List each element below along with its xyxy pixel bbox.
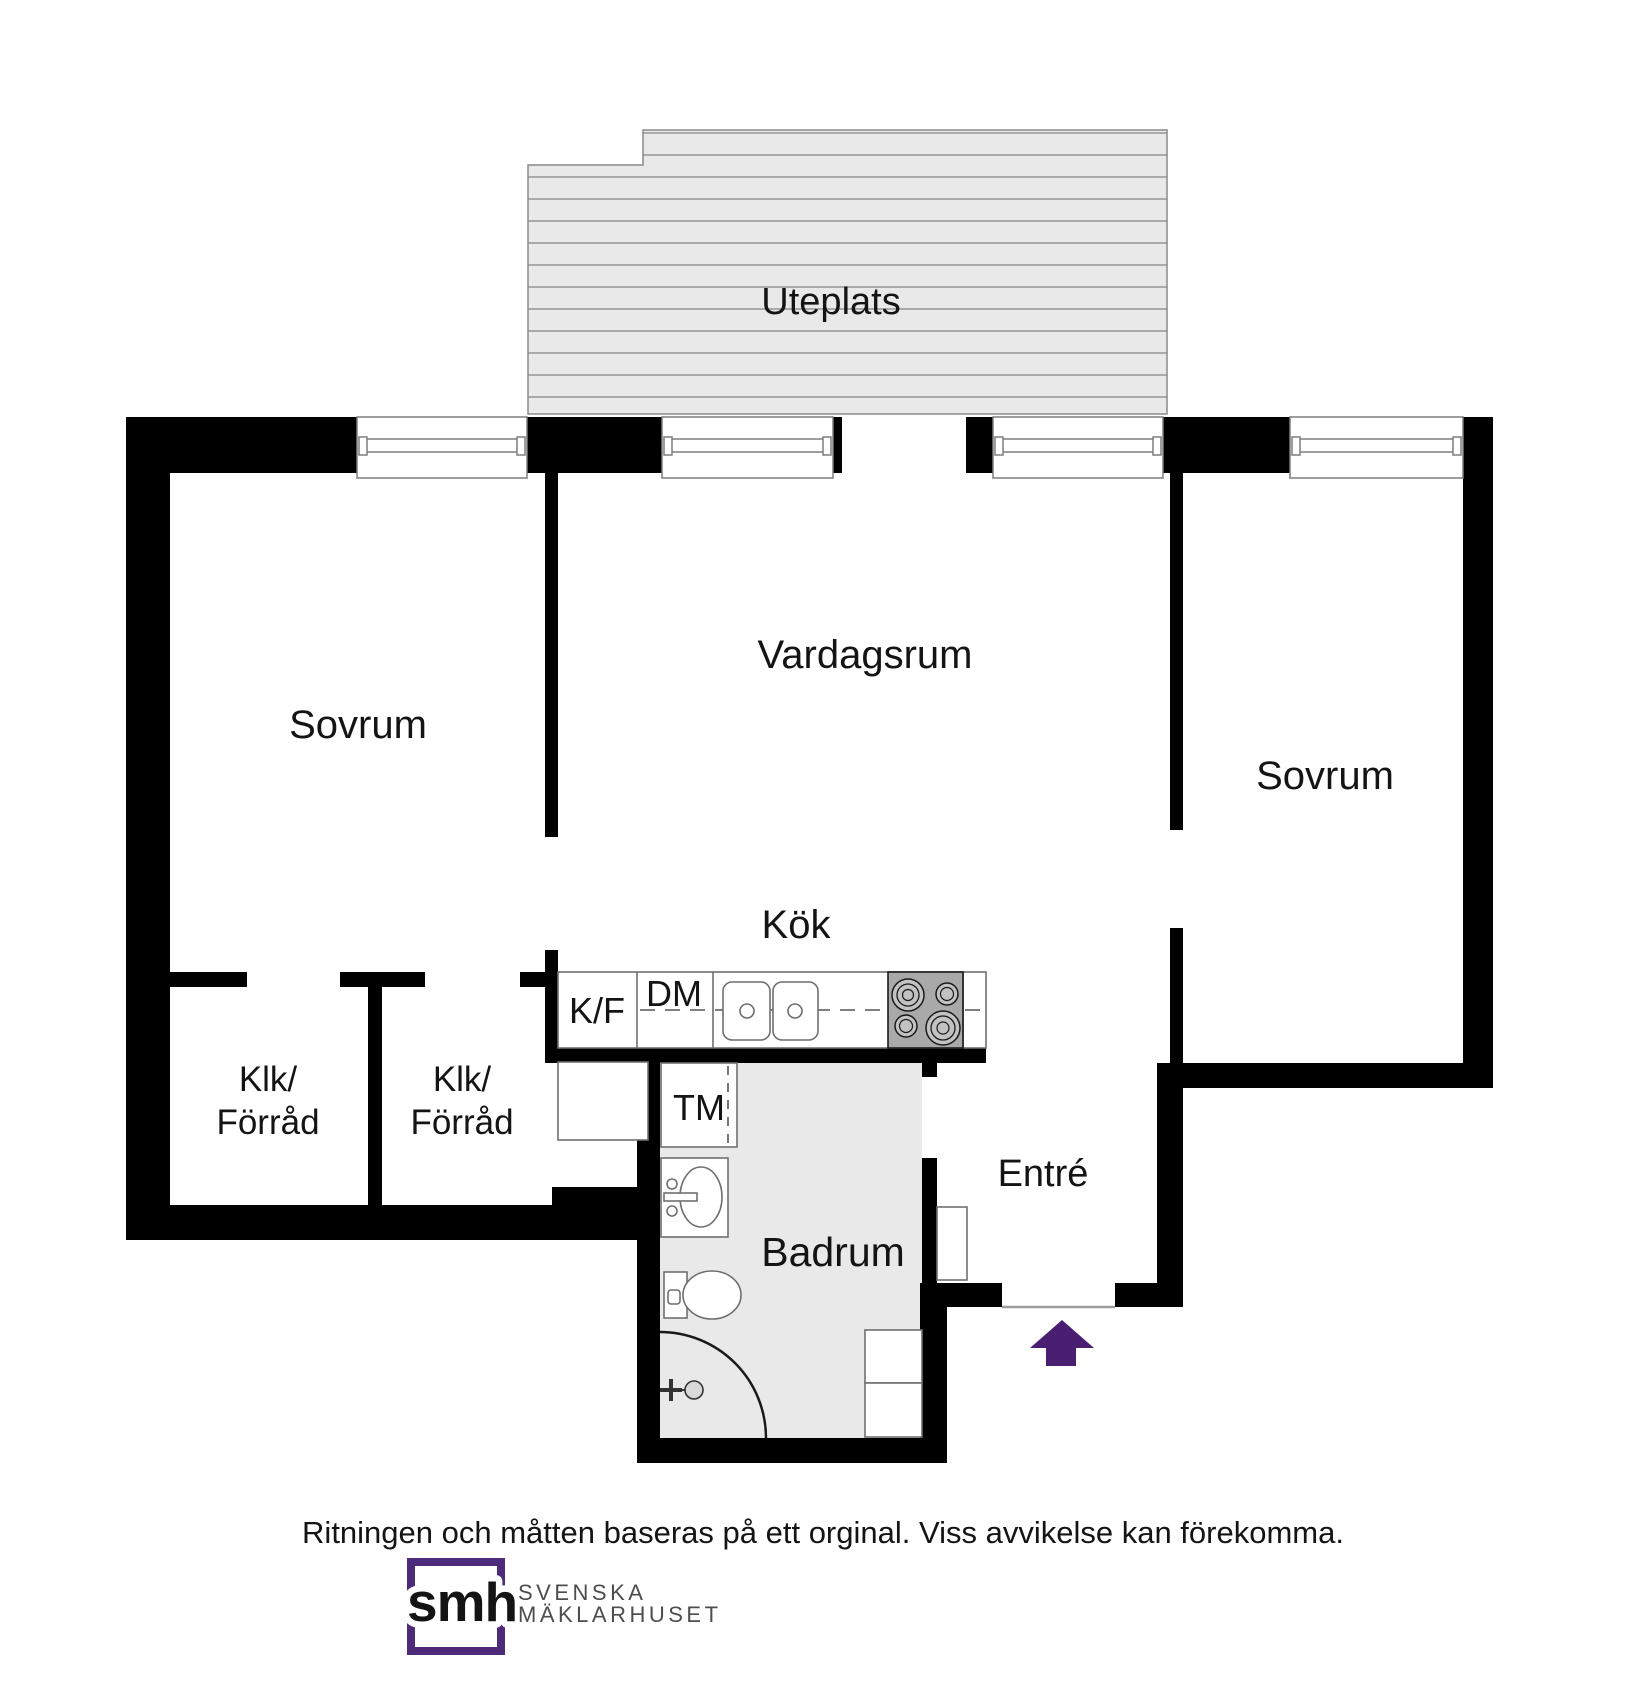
window-endcap xyxy=(517,437,525,455)
window-endcap xyxy=(664,437,672,455)
burner xyxy=(936,983,958,1005)
wall-sovrum-right-south xyxy=(1157,1063,1493,1088)
window-endcap xyxy=(823,437,831,455)
wall-sovrum-left-east-upper xyxy=(545,473,558,837)
wall-klk-top-2 xyxy=(340,972,425,987)
window-endcap xyxy=(1292,437,1300,455)
wall-sovrum-right-west-upper xyxy=(1170,473,1183,830)
wall-bath-east-lower xyxy=(920,1307,947,1438)
room-label-sovrum-left: Sovrum xyxy=(289,703,427,747)
window-icon xyxy=(993,417,1163,478)
wall-top-stub xyxy=(833,417,842,473)
washbasin-knob xyxy=(667,1206,677,1216)
washbasin-tap xyxy=(664,1193,697,1201)
window-icon xyxy=(1290,417,1463,478)
appliance-label-tm: TM xyxy=(673,1087,725,1128)
room-label-klk-left-1: Klk/ xyxy=(239,1060,298,1099)
wall-sovrum-left-east-lower xyxy=(545,950,558,1063)
window-icon xyxy=(357,417,527,478)
wall-bath-east-stub xyxy=(922,1052,937,1077)
room-label-badrum: Badrum xyxy=(761,1229,905,1275)
wall-entry-east-chunk xyxy=(1115,1283,1183,1307)
window-glass xyxy=(364,439,520,452)
wall-top-3 xyxy=(966,417,993,473)
sink-drain xyxy=(740,1004,754,1018)
wall-top-2 xyxy=(527,417,662,473)
windows xyxy=(357,417,1463,478)
room-label-sovrum-right: Sovrum xyxy=(1256,754,1394,798)
room-label-klk-right-2: Förråd xyxy=(410,1103,513,1142)
entrance-arrow-icon xyxy=(1030,1320,1094,1366)
window-glass xyxy=(669,439,826,452)
disclaimer-text: Ritningen och måtten baseras på ett orgi… xyxy=(302,1515,1344,1550)
bathroom-cabinet xyxy=(865,1383,922,1437)
wall-top-4 xyxy=(1163,417,1290,473)
window-endcap xyxy=(995,437,1003,455)
wall-sovrum-right-west-lower xyxy=(1170,928,1183,1065)
toilet-icon xyxy=(664,1271,741,1319)
wall-entre-east xyxy=(1157,1065,1183,1283)
window-glass xyxy=(1297,439,1456,452)
appliance-label-kf: K/F xyxy=(569,990,625,1031)
window-endcap xyxy=(1453,437,1461,455)
room-label-vardagsrum: Vardagsrum xyxy=(758,633,973,677)
bathroom-cabinet xyxy=(865,1330,922,1383)
floor-plan-page: Uteplats xyxy=(0,0,1650,1685)
wall-bath-south xyxy=(637,1438,947,1463)
window-icon xyxy=(662,417,833,478)
washbasin-knob xyxy=(667,1179,677,1189)
window-endcap xyxy=(359,437,367,455)
terrace-deck xyxy=(528,130,1167,414)
wall-left xyxy=(126,417,170,1240)
entry-cabinet xyxy=(937,1207,967,1280)
wall-klk-divider xyxy=(368,987,382,1205)
logo-mark-text: smh xyxy=(407,1571,517,1633)
window-glass xyxy=(1000,439,1156,452)
room-label-klk-left-2: Förråd xyxy=(216,1103,319,1142)
sink-drain xyxy=(788,1004,802,1018)
wall-klk-top-1 xyxy=(170,972,247,987)
kitchen-sink-icon xyxy=(723,982,818,1040)
logo-name-line2: MÄKLARHUSET xyxy=(518,1602,722,1627)
logo: smh SVENSKA MÄKLARHUSET xyxy=(407,1562,722,1651)
terrace: Uteplats xyxy=(528,130,1167,414)
room-label-kok: Kök xyxy=(762,903,832,947)
toilet-bowl xyxy=(683,1271,741,1319)
hall-wardrobe xyxy=(558,1062,648,1140)
appliance-label-dm: DM xyxy=(646,973,702,1014)
wall-bath-east-mid xyxy=(922,1158,937,1283)
floor-plan-svg: Uteplats xyxy=(0,0,1650,1685)
wall-counter-band xyxy=(558,1048,986,1063)
room-label-uteplats: Uteplats xyxy=(761,281,900,323)
room-label-klk-right-1: Klk/ xyxy=(433,1060,492,1099)
window-endcap xyxy=(1153,437,1161,455)
wall-entry-west-chunk xyxy=(920,1283,1002,1307)
room-label-entre: Entré xyxy=(998,1153,1089,1195)
shower-head xyxy=(685,1381,703,1399)
wall-right xyxy=(1463,417,1493,1088)
burner xyxy=(895,1015,917,1037)
stove-icon xyxy=(888,972,963,1048)
bathroom-sink-icon xyxy=(661,1158,728,1237)
toilet-button xyxy=(668,1290,680,1304)
